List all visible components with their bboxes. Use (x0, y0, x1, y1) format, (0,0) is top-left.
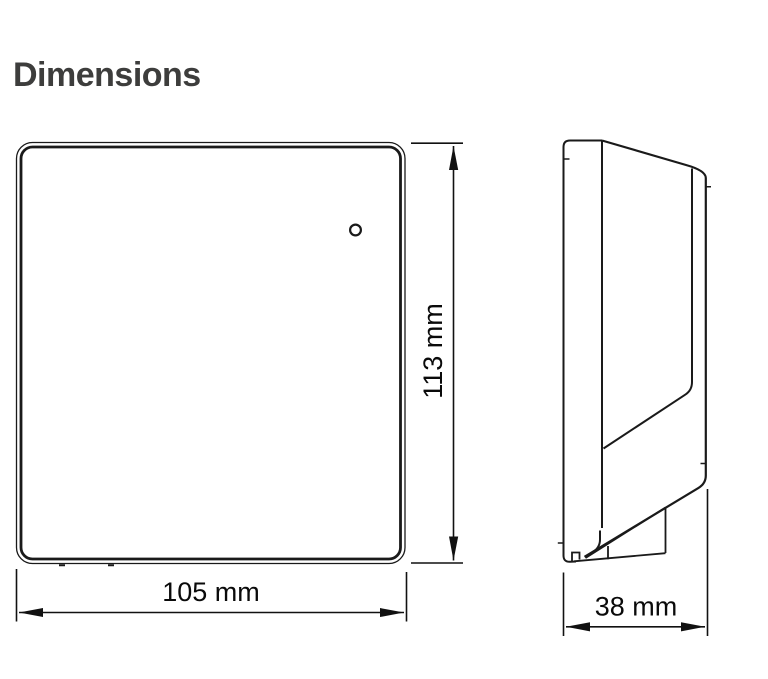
parting-line-ticks (564, 159, 712, 464)
width-dimension: 105 mm (17, 569, 407, 622)
led-hole (350, 225, 361, 236)
depth-dimension-label: 38 mm (595, 592, 678, 622)
depth-arrow-left-icon (566, 622, 590, 631)
dimension-drawing: 105 mm 113 mm (0, 0, 768, 679)
height-dimension: 113 mm (411, 143, 463, 563)
front-housing-inner-edge (21, 147, 401, 559)
side-view (558, 141, 711, 562)
height-arrow-bottom-icon (449, 537, 458, 561)
dimensions-page: Dimensions 105 mm (0, 0, 768, 679)
height-arrow-top-icon (449, 146, 458, 170)
front-view (17, 143, 406, 566)
back-plate-front-edge (587, 141, 603, 557)
width-arrow-left-icon (19, 608, 43, 617)
front-cover-inner-edge (604, 169, 693, 449)
depth-dimension: 38 mm (564, 489, 708, 636)
front-housing-outer-edge (17, 143, 406, 564)
bottom-clip-foot (572, 553, 580, 562)
width-arrow-right-icon (380, 608, 404, 617)
depth-arrow-right-icon (681, 622, 705, 631)
back-plate-outline (564, 141, 603, 562)
width-dimension-label: 105 mm (162, 577, 260, 607)
height-dimension-label: 113 mm (418, 303, 448, 399)
